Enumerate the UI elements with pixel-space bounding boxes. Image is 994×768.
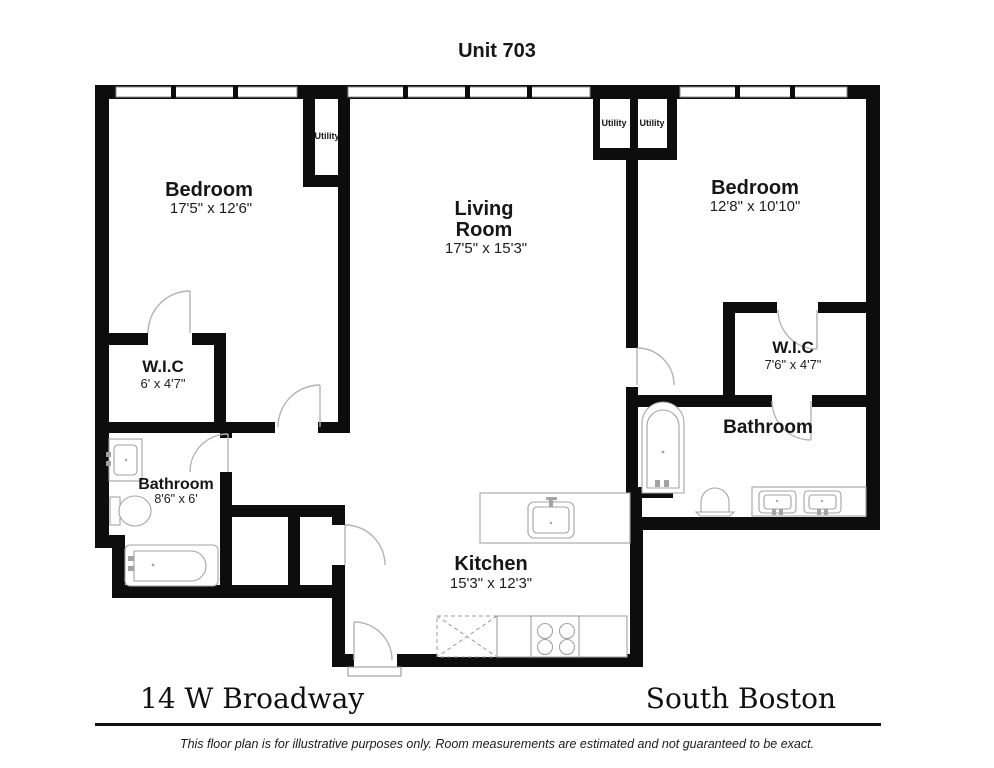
faucet-icon — [128, 566, 134, 571]
drain-dot — [152, 564, 155, 567]
dims-kitchen: 15'3" x 12'3" — [450, 576, 532, 592]
dims-wic-left: 6' x 4'7" — [141, 377, 186, 391]
toilet-bowl-icon — [701, 488, 729, 512]
faucet-icon — [106, 461, 111, 466]
bathtub-inner-icon — [647, 410, 679, 488]
wall-wicleft-top-a — [95, 333, 148, 345]
dims-bedroom-left: 17'5" x 12'6" — [170, 201, 252, 217]
window-mullion — [735, 85, 740, 99]
door-arc-bathroom-left — [190, 434, 228, 472]
label-bedroom-right: Bedroom — [711, 178, 799, 200]
faucet-icon — [546, 497, 557, 500]
toilet-base-icon — [696, 512, 734, 516]
window-bedroom-left — [116, 87, 297, 97]
drain-dot — [550, 522, 552, 524]
drain-dot — [821, 500, 823, 502]
dims-bathroom-left: 8'6" x 6' — [154, 493, 197, 506]
faucet-icon — [106, 452, 111, 457]
label-bedroom-left: Bedroom — [165, 180, 253, 202]
door-arc-bedroom-right — [637, 348, 674, 385]
footer-neighborhood: South Boston — [646, 682, 836, 715]
window-mullion — [403, 85, 408, 99]
sink-basin-icon — [809, 495, 836, 509]
wall-lowerleft — [112, 548, 125, 598]
wall-closets-top — [220, 505, 345, 517]
label-kitchen: Kitchen — [454, 554, 527, 576]
label-bathroom-right: Bathroom — [723, 418, 813, 439]
label-living-line2: Room — [456, 220, 513, 242]
faucet-icon — [549, 500, 553, 507]
wall-wicleft-right — [214, 333, 226, 432]
bathtub-inner-icon — [134, 551, 206, 581]
faucet-icon — [655, 480, 660, 487]
wall-bathleft-right — [220, 472, 232, 598]
wall-hall-top-b — [318, 422, 350, 433]
floorplan-page: Unit 703 — [0, 0, 994, 768]
dims-living: 17'5" x 15'3" — [445, 241, 527, 257]
wall-hall-top-a — [95, 422, 275, 433]
window-mullion — [465, 85, 470, 99]
dims-wic-right: 7'6" x 4'7" — [765, 358, 822, 372]
label-utility-left: Utility — [314, 132, 339, 142]
window-mullion — [233, 85, 238, 99]
faucet-icon — [664, 480, 669, 487]
faucet-icon — [817, 509, 821, 515]
wall-bathright-top-b — [812, 395, 866, 407]
faucet-icon — [824, 509, 828, 515]
windows — [116, 85, 847, 99]
drain-dot — [776, 500, 778, 502]
door-arc-wic-left — [148, 291, 190, 333]
sink-basin-icon — [764, 495, 791, 509]
wall-left — [95, 85, 109, 548]
dims-bedroom-right: 12'8" x 10'10" — [710, 199, 801, 215]
wall-closet-mid — [288, 505, 300, 598]
wall-wicright-top-b — [818, 302, 866, 313]
kitchen-entry-threshold — [348, 667, 401, 676]
wall-kitchen-left-b — [332, 565, 345, 667]
burner-icon — [560, 624, 575, 639]
door-arc-hall-closet — [345, 525, 385, 565]
drain-dot — [125, 459, 127, 461]
footer-disclaimer: This floor plan is for illustrative purp… — [0, 737, 994, 751]
label-living-line1: Living — [455, 199, 514, 221]
window-mullion — [527, 85, 532, 99]
faucet-icon — [779, 509, 783, 515]
wall-kitchen-right — [630, 517, 643, 667]
wall-divider-left — [338, 99, 350, 432]
burner-icon — [538, 640, 553, 655]
window-bedroom-right — [680, 87, 847, 97]
door-arc-kitchen-entry — [354, 622, 392, 660]
wall-utility-left-side — [303, 99, 315, 177]
window-mullion — [790, 85, 795, 99]
door-arc-bedroom-left — [278, 385, 320, 427]
wall-wicright-left — [723, 302, 735, 407]
burner-icon — [560, 640, 575, 655]
drain-dot — [662, 451, 665, 454]
wall-divider-right-lower — [626, 387, 638, 487]
faucet-icon — [128, 556, 134, 561]
label-wic-right: W.I.C — [772, 339, 814, 357]
toilet-bowl-icon — [119, 496, 151, 526]
footer-address: 14 W Broadway — [140, 682, 364, 715]
label-utility-right-b: Utility — [639, 119, 664, 129]
footer-rule — [95, 723, 881, 726]
island-sink-basin-icon — [533, 507, 569, 533]
window-mullion — [171, 85, 176, 99]
burner-icon — [538, 624, 553, 639]
faucet-icon — [772, 509, 776, 515]
wall-bathright-bottom — [630, 517, 880, 530]
label-wic-left: W.I.C — [142, 358, 184, 376]
label-bathroom-left: Bathroom — [138, 476, 214, 493]
wall-right — [866, 85, 880, 530]
label-utility-right-a: Utility — [601, 119, 626, 129]
